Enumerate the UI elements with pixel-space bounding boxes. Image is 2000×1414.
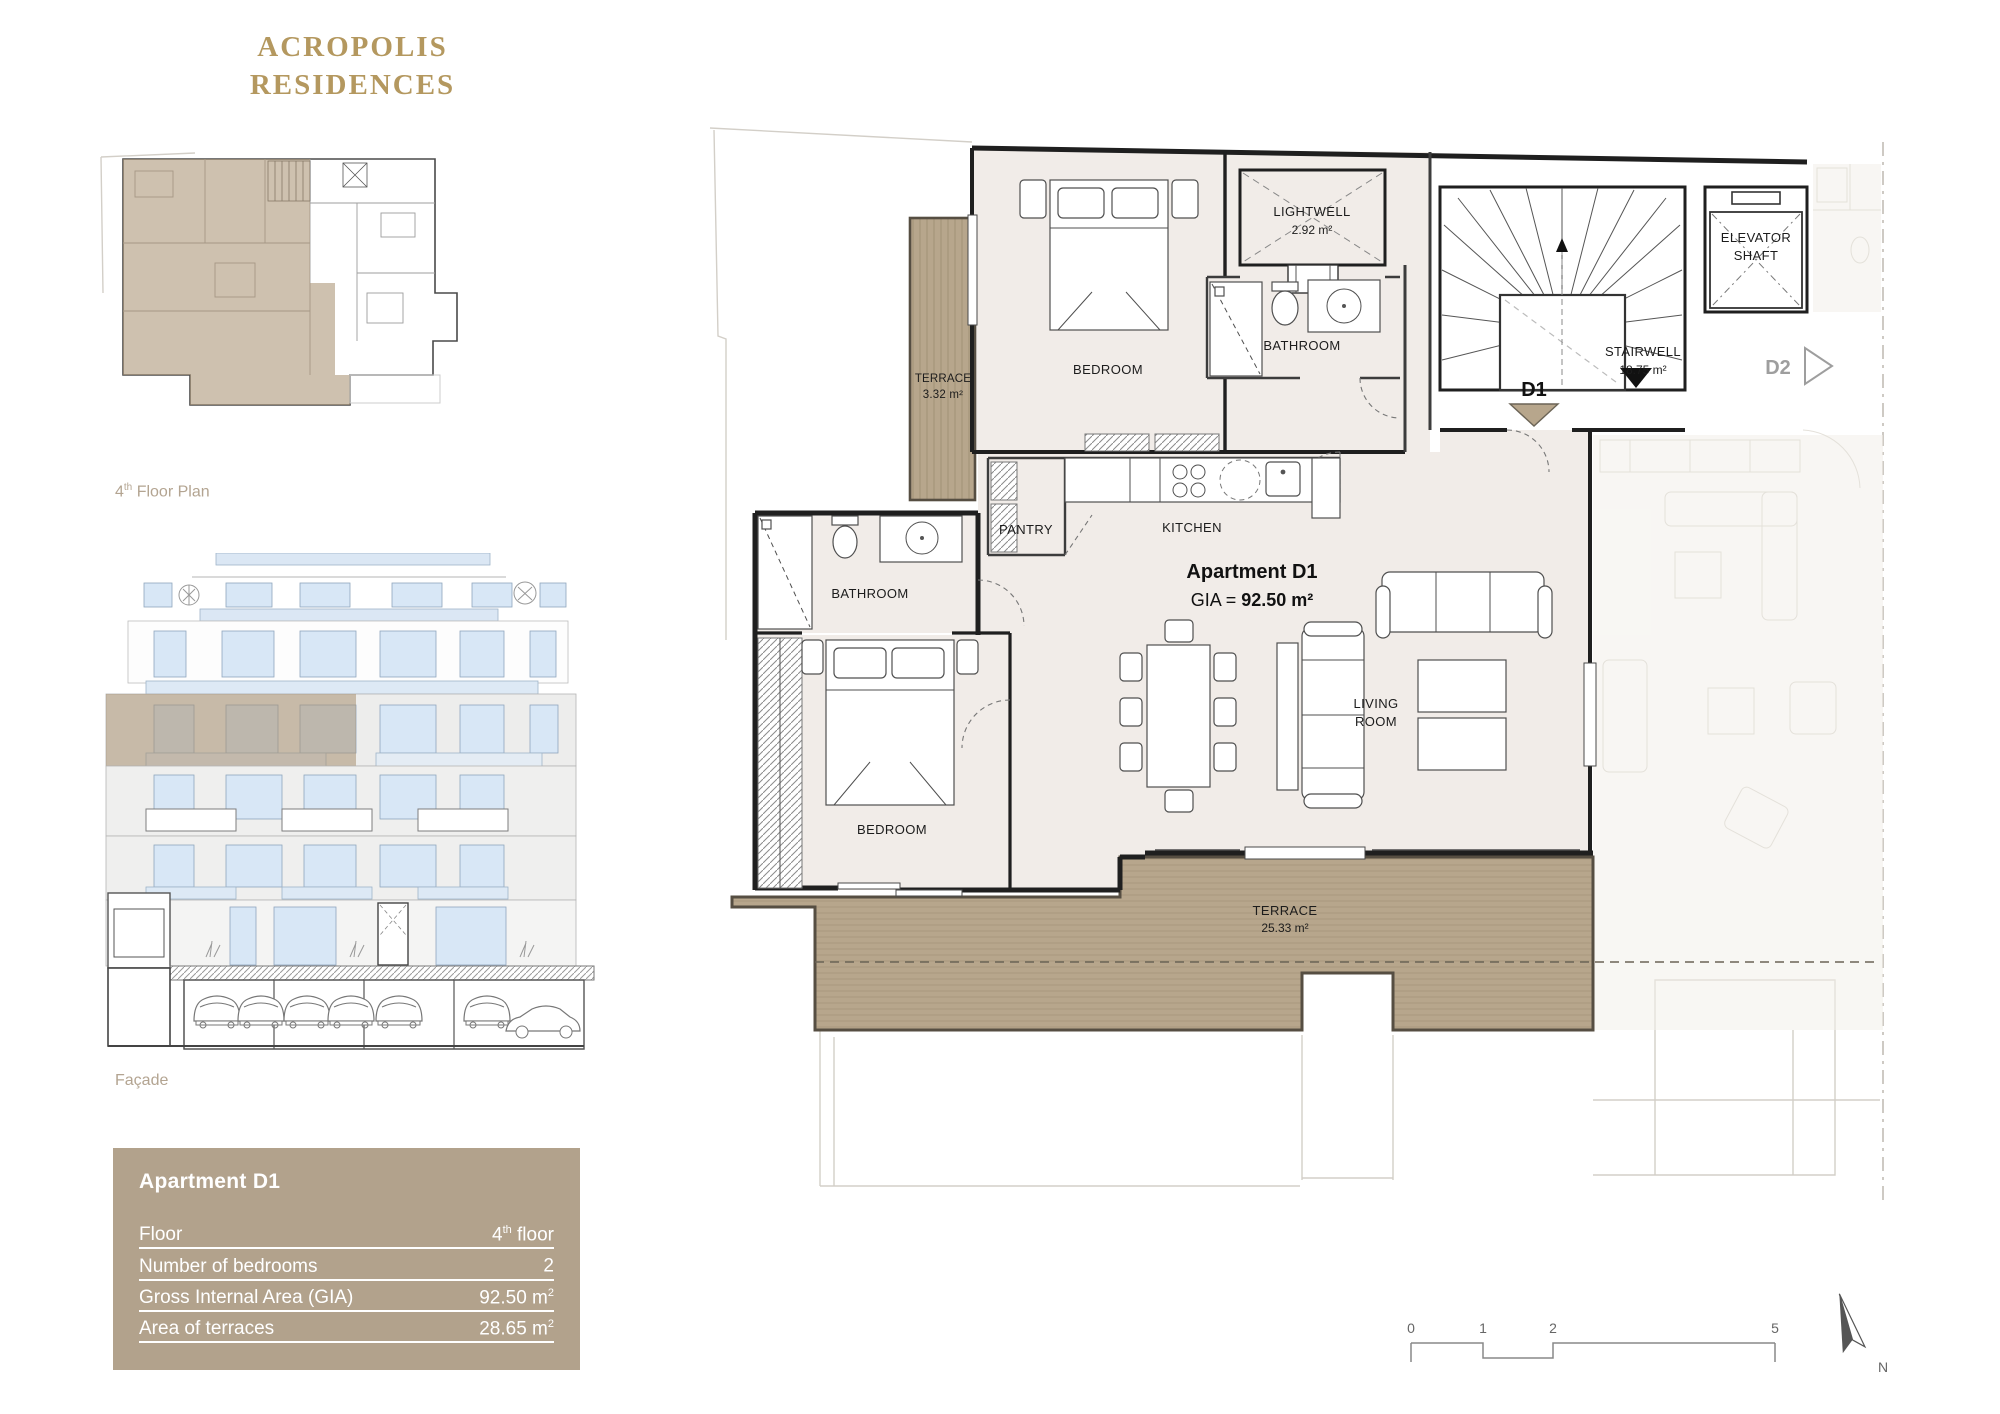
label-bedroom-left: BEDROOM — [857, 822, 927, 837]
info-row-gia: Gross Internal Area (GIA) 92.50 m2 — [139, 1281, 554, 1312]
living-sliding-door — [1245, 847, 1365, 859]
info-value: 28.65 m2 — [479, 1318, 554, 1340]
info-value: 92.50 m2 — [479, 1287, 554, 1309]
label-apartment-gia: GIA = 92.50 m² — [1191, 590, 1314, 610]
info-value: 2 — [543, 1255, 554, 1277]
scale-tick-5: 5 — [1771, 1320, 1779, 1336]
label-living-1: LIVING — [1353, 696, 1398, 711]
brand-line-1: ACROPOLIS — [180, 28, 525, 66]
info-label: Area of terraces — [139, 1318, 274, 1340]
scale-tick-2: 2 — [1549, 1320, 1557, 1336]
info-value: 4th floor — [492, 1224, 554, 1246]
label-bathroom-top: BATHROOM — [1263, 338, 1340, 353]
sofa-center — [1277, 622, 1364, 808]
scale-tick-0: 0 — [1407, 1320, 1415, 1336]
label-terrace-main: TERRACE — [1253, 903, 1318, 918]
brand-logo: ACROPOLIS RESIDENCES — [180, 28, 525, 105]
brand-line-2: RESIDENCES — [180, 66, 525, 104]
north-arrow-icon: N — [1827, 1291, 1888, 1375]
label-elevator-2: SHAFT — [1734, 248, 1779, 263]
label-terrace-main-area: 25.33 m² — [1261, 921, 1308, 935]
facade-floor4-highlighted — [106, 694, 576, 770]
sofa-top — [1376, 572, 1552, 638]
label-lightwell: LIGHTWELL — [1273, 204, 1350, 219]
facade-ground-line — [170, 966, 594, 980]
scale-bar: 0 1 2 5 — [1407, 1320, 1779, 1362]
info-row-terraces: Area of terraces 28.65 m2 — [139, 1312, 554, 1343]
label-stairwell-area: 18.75 m² — [1619, 363, 1666, 377]
bedroom-top-window — [968, 215, 977, 325]
label-bathroom-left: BATHROOM — [831, 586, 908, 601]
facade-floor5 — [128, 621, 568, 694]
facade-elevation — [88, 553, 595, 1060]
label-d1: D1 — [1521, 379, 1547, 401]
floor-plan-caption-num: 4 — [115, 483, 124, 500]
facade-roof — [144, 553, 566, 621]
label-lightwell-area: 2.92 m² — [1292, 223, 1333, 237]
facade-floor2 — [106, 836, 576, 900]
label-elevator-1: ELEVATOR — [1721, 230, 1791, 245]
floor-plan-caption-rest: Floor Plan — [132, 483, 209, 500]
floor-plan-caption-sup: th — [124, 482, 132, 493]
facade-caption: Façade — [115, 1072, 168, 1090]
scale-tick-1: 1 — [1479, 1320, 1487, 1336]
info-row-floor: Floor 4th floor — [139, 1218, 554, 1249]
info-label: Floor — [139, 1224, 182, 1246]
pantry-shelves — [991, 462, 1017, 552]
label-stairwell: STAIRWELL — [1605, 344, 1681, 359]
info-label: Gross Internal Area (GIA) — [139, 1287, 353, 1309]
label-terrace-top-area: 3.32 m² — [923, 389, 963, 401]
floor-plan-thumbnail — [95, 143, 467, 473]
living-east-window — [1584, 663, 1596, 766]
info-row-bedrooms: Number of bedrooms 2 — [139, 1249, 554, 1280]
label-living-2: ROOM — [1355, 714, 1397, 729]
label-terrace-top: TERRACE — [915, 373, 971, 385]
facade-d1-highlight — [106, 694, 356, 770]
info-label: Number of bedrooms — [139, 1256, 317, 1278]
facade-floor3 — [106, 766, 576, 836]
facade-ground-floor — [106, 893, 576, 968]
north-label: N — [1878, 1359, 1888, 1375]
terrace-top — [910, 218, 975, 500]
label-pantry: PANTRY — [999, 522, 1053, 537]
label-apartment-title: Apartment D1 — [1186, 561, 1317, 583]
label-kitchen: KITCHEN — [1162, 520, 1222, 535]
info-panel-title: Apartment D1 — [139, 1170, 554, 1194]
main-floor-plan: BEDROOM LIGHTWELL 2.92 m² BATHROOM STAIR… — [700, 100, 1960, 1410]
label-bedroom-top: BEDROOM — [1073, 362, 1143, 377]
label-d2: D2 — [1765, 357, 1791, 379]
floor-plan-caption: 4th Floor Plan — [115, 482, 210, 501]
thumbnail-terrace-outline — [350, 375, 440, 403]
unit-marker-d2: D2 — [1765, 348, 1832, 384]
stairwell — [1440, 187, 1685, 390]
apartment-info-panel: Apartment D1 Floor 4th floor Number of b… — [113, 1148, 580, 1370]
